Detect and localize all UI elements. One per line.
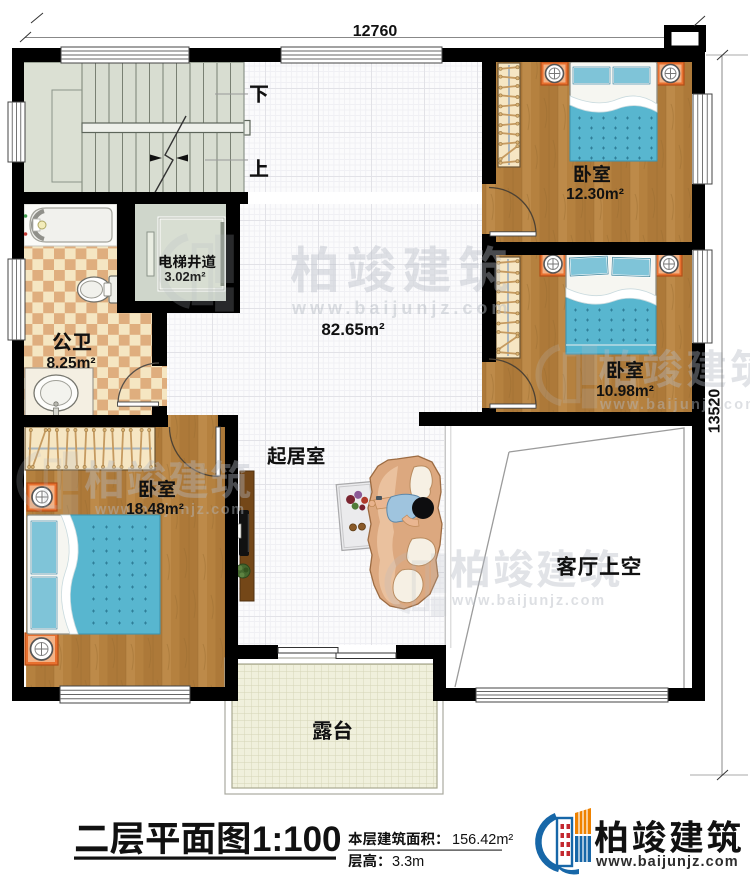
svg-text:3.02m²: 3.02m² — [164, 269, 206, 284]
svg-text:3.3m: 3.3m — [392, 854, 424, 870]
svg-text:10.98m²: 10.98m² — [596, 383, 654, 400]
svg-text:www.baijunjz.com: www.baijunjz.com — [451, 593, 606, 609]
svg-text:13520: 13520 — [707, 389, 724, 434]
svg-text:12760: 12760 — [353, 23, 398, 40]
svg-text:156.42m²: 156.42m² — [452, 832, 513, 848]
svg-text:www.baijunjz.com: www.baijunjz.com — [291, 298, 511, 318]
svg-text:12.30m²: 12.30m² — [566, 186, 624, 203]
svg-text:8.25m²: 8.25m² — [46, 355, 95, 372]
svg-text:1:100: 1:100 — [252, 820, 342, 859]
svg-text:18.48m²: 18.48m² — [126, 501, 184, 518]
svg-text:82.65m²: 82.65m² — [321, 320, 385, 339]
svg-text:www.baijunjz.com: www.baijunjz.com — [595, 854, 739, 870]
